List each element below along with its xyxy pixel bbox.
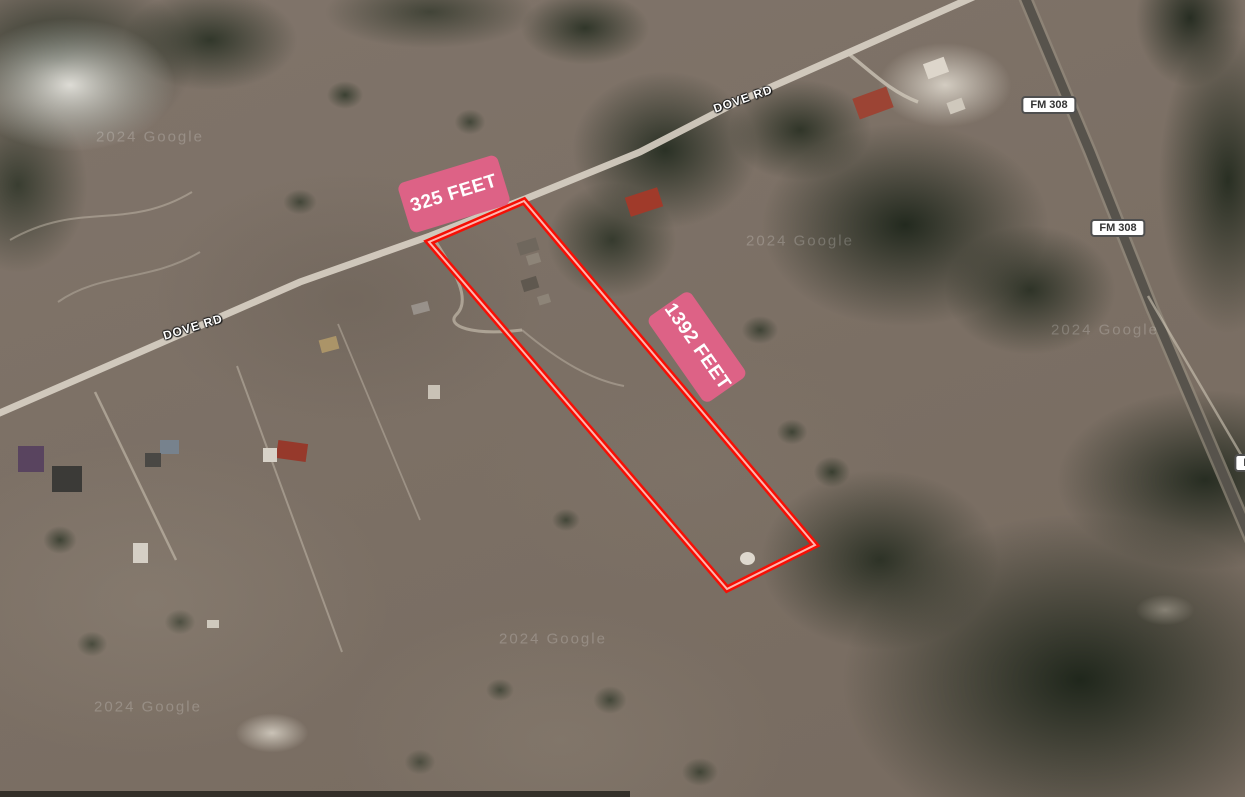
route-badge-fm308: FM 308 (1090, 219, 1145, 237)
imagery-watermark: 2024 Google (1051, 322, 1159, 339)
route-badge-fm308-clipped: FM 308 (1234, 454, 1245, 472)
imagery-watermark: 2024 Google (96, 129, 204, 146)
imagery-watermark: 2024 Google (94, 699, 202, 716)
satellite-imagery (0, 0, 1245, 797)
imagery-watermark: 2024 Google (746, 233, 854, 250)
image-edge-strip (0, 791, 630, 797)
imagery-watermark: 2024 Google (499, 631, 607, 648)
satellite-map[interactable]: 2024 Google 2024 Google 2024 Google 2024… (0, 0, 1245, 797)
route-badge-fm308: FM 308 (1021, 96, 1076, 114)
